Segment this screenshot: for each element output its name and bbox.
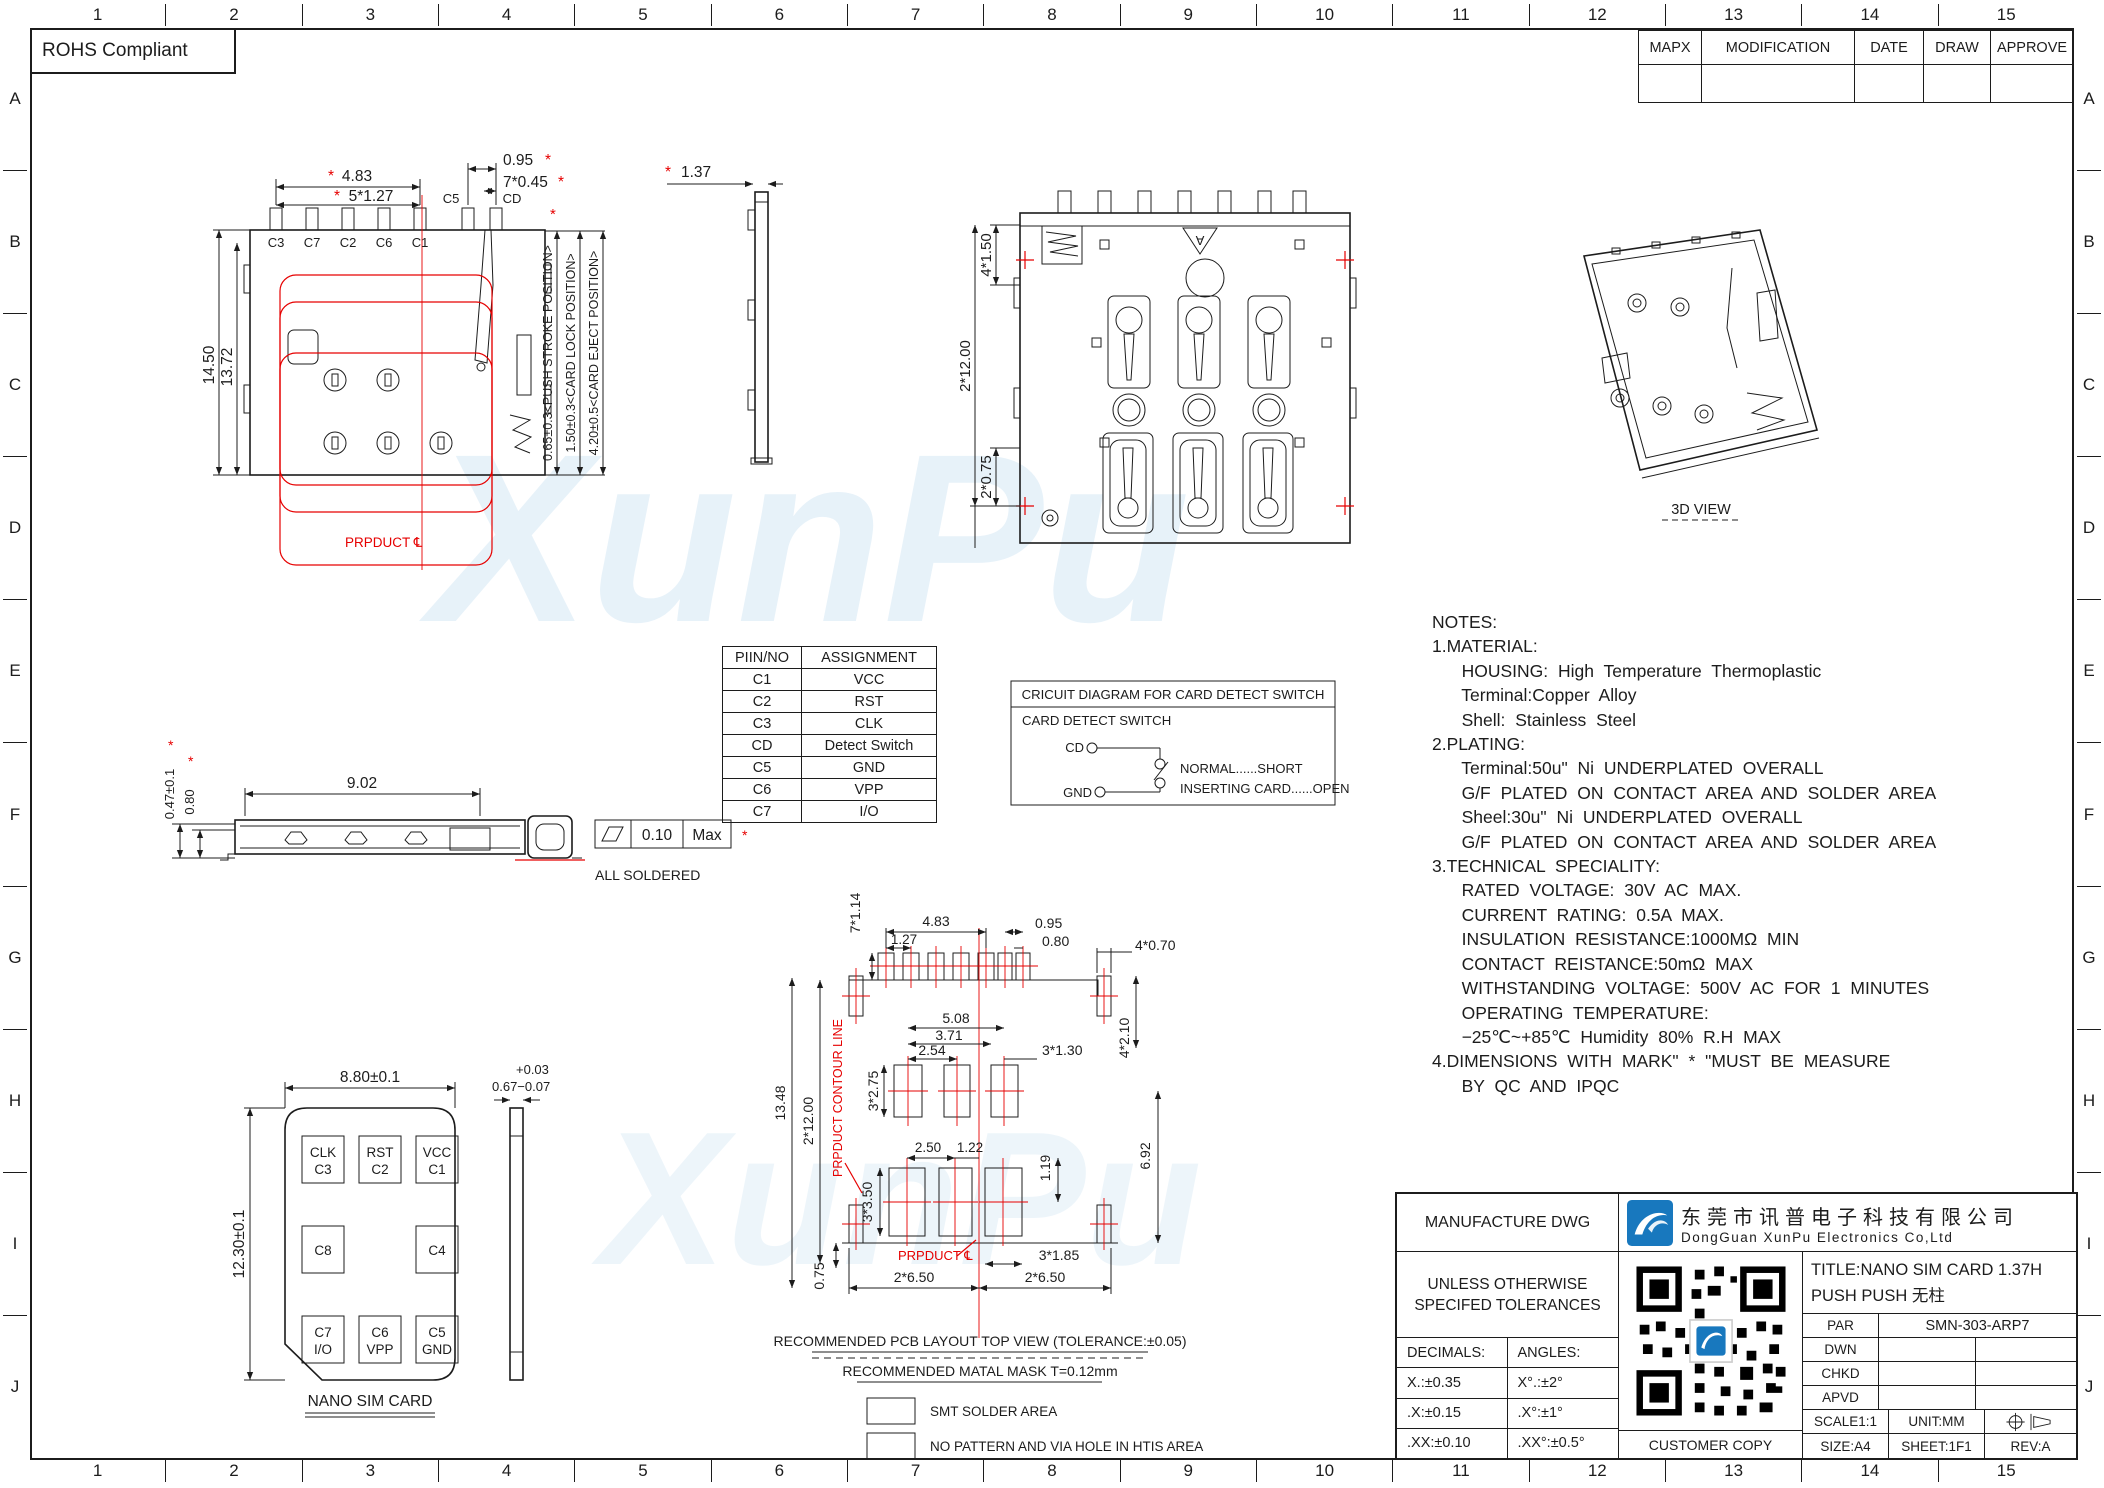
dim: 4*0.70 (1135, 937, 1176, 953)
sim-card-geometry (244, 1082, 540, 1417)
circuit-normal-note: NORMAL......SHORT (1180, 761, 1303, 776)
dim: 1.22 (957, 1140, 983, 1155)
dim: 13.48 (772, 1085, 788, 1120)
star-mark: * (168, 737, 174, 753)
ruler-row: H (2077, 1030, 2101, 1173)
view-3d: 3D VIEW (1532, 208, 1872, 533)
dwn-value (1879, 1338, 1976, 1361)
ruler-col: 10 (1257, 1460, 1393, 1482)
ruler-col: 7 (848, 4, 984, 26)
view-3d-geometry (1584, 230, 1819, 520)
size-label: SIZE:A4 (1803, 1434, 1889, 1458)
ruler-col: 15 (1939, 4, 2074, 26)
pad-label: C1 (428, 1162, 445, 1177)
dim: 3.71 (935, 1027, 962, 1043)
pin-label-c5: C5 (443, 191, 460, 206)
ruler-col: 12 (1530, 4, 1666, 26)
rev-cell-empty (1702, 65, 1855, 102)
dwn-label: DWN (1803, 1338, 1879, 1361)
ruler-col: 11 (1393, 1460, 1529, 1482)
ruler-col: 13 (1666, 1460, 1802, 1482)
pcb-layout-view: 4.83 1.27 0.95 0.80 4*0.70 7*1.14 5.08 3… (752, 868, 1207, 1466)
pad-label: RST (367, 1145, 394, 1160)
pad-label: C8 (314, 1243, 331, 1258)
scale-label: SCALE1:1 (1803, 1410, 1889, 1433)
flatness-max: Max (692, 827, 722, 844)
pin-table-header: ASSIGNMENT (802, 647, 937, 669)
pin-label: C3 (268, 235, 285, 250)
star-mark: * (558, 174, 564, 191)
sim-card-label: NANO SIM CARD (308, 1393, 433, 1410)
apvd-label: APVD (1803, 1386, 1879, 1409)
card-lock-position: 1.50±0.3<CARD LOCK POSITION> (564, 253, 578, 452)
dim: 2*6.50 (1025, 1269, 1066, 1285)
star-mark: * (188, 753, 194, 769)
ruler-row: A (3, 28, 27, 171)
sim-card-view: 8.80±0.1 12.30±0.1 +0.03 0.67−0.07 CLK C… (210, 1058, 565, 1428)
chkd-extra (1976, 1362, 2076, 1385)
star-mark: * (328, 168, 334, 185)
rev-header: DATE (1855, 31, 1924, 65)
pin-assignment: RST (802, 691, 937, 713)
pin-assignment: VPP (802, 779, 937, 801)
view-3d-label: 3D VIEW (1671, 502, 1731, 518)
pin-assignment: Detect Switch (802, 735, 937, 757)
rev-header: DRAW (1924, 31, 1991, 65)
note-line: RATED VOLTAGE: 30V AC MAX. (1432, 878, 2012, 902)
title-block: MANUFACTURE DWG 东莞市讯普电子科技有限公司 DongGuan X… (1395, 1192, 2078, 1460)
star-mark: * (545, 152, 551, 169)
table-row: C1VCC (723, 669, 937, 691)
pin-label-cd: CD (503, 191, 522, 206)
ruler-col: 9 (1121, 4, 1257, 26)
pad-label: C6 (371, 1325, 388, 1340)
ruler-col: 6 (712, 4, 848, 26)
pad-label: C3 (314, 1162, 331, 1177)
dim-h1: 0.47±0.1 (162, 769, 177, 820)
note-line: Terminal:50u" Ni UNDERPLATED OVERALL (1432, 756, 2012, 780)
ruler-col: 5 (575, 4, 711, 26)
ruler-col: 15 (1939, 1460, 2074, 1482)
decimals-header: DECIMALS: (1397, 1338, 1508, 1368)
table-row: C2RST (723, 691, 937, 713)
circuit-inserting-note: INSERTING CARD......OPEN (1180, 781, 1350, 796)
circuit-gnd-label: GND (1063, 785, 1092, 800)
note-line: 4.DIMENSIONS WITH MARK" * "MUST BE MEASU… (1432, 1049, 2012, 1073)
ruler-left: ABCDEFGHIJ (3, 28, 27, 1458)
drawing-sheet: XunPu XunPu 123456789101112131415 123456… (0, 0, 2104, 1488)
ruler-row: C (3, 314, 27, 457)
pad-label: VCC (423, 1145, 452, 1160)
ruler-col: 14 (1802, 1460, 1938, 1482)
ruler-row: J (2077, 1316, 2101, 1458)
note-line: HOUSING: High Temperature Thermoplastic (1432, 659, 2012, 683)
note-line: −25℃~+85℃ Humidity 80% R.H MAX (1432, 1025, 2012, 1049)
star-mark: * (665, 164, 671, 181)
ruler-col: 13 (1666, 4, 1802, 26)
dwn-extra (1976, 1338, 2076, 1361)
dim: 3*2.75 (865, 1071, 881, 1112)
dim-width: 4.83 (342, 168, 372, 185)
dim-height: 1.37 (681, 164, 711, 181)
note-line: CONTACT REISTANCE:50mΩ MAX (1432, 952, 2012, 976)
company-logo-icon (1627, 1200, 1673, 1246)
circuit-subtitle: CARD DETECT SWITCH (1022, 713, 1171, 728)
rev-label: REV:A (1985, 1434, 2076, 1458)
rev-header: APPROVE (1991, 31, 2073, 65)
tolerance-value: .X°:±1° (1508, 1399, 1619, 1429)
rev-cell-empty (1991, 65, 2073, 102)
dim-pitch: 5*1.27 (349, 188, 394, 205)
par-label: PAR (1803, 1314, 1879, 1337)
pin-table-header: PIIN/NO (723, 647, 802, 669)
ruler-col: 5 (575, 1460, 711, 1482)
product-contour-label: PRPDUCT CONTOUR LINE (831, 1019, 845, 1177)
circuit-title: CRICUIT DIAGRAM FOR CARD DETECT SWITCH (1022, 687, 1325, 702)
dim: 0.80 (1042, 933, 1069, 949)
pad-label: C4 (428, 1243, 446, 1258)
all-soldered-note: ALL SOLDERED (595, 867, 700, 883)
tolerance-value: .XX:±0.10 (1397, 1429, 1508, 1458)
note-line: Terminal:Copper Alloy (1432, 683, 2012, 707)
dim: 5.08 (942, 1010, 969, 1026)
ruler-row: J (3, 1316, 27, 1458)
pin-assignment: I/O (802, 801, 937, 823)
ruler-row: D (2077, 457, 2101, 600)
company-name-cn: 东莞市讯普电子科技有限公司 (1681, 1201, 2019, 1230)
part-number: SMN-303-ARP7 (1879, 1314, 2076, 1337)
pcb-caption: RECOMMENDED PCB LAYOUT TOP VIEW (TOLERAN… (774, 1333, 1187, 1349)
ruler-col: 1 (30, 4, 166, 26)
pad-label: C2 (371, 1162, 388, 1177)
ruler-row: G (3, 887, 27, 1030)
note-line: WITHSTANDING VOLTAGE: 500V AC FOR 1 MINU… (1432, 976, 2012, 1000)
ruler-col: 4 (439, 1460, 575, 1482)
pcb-caption: RECOMMENDED MATAL MASK T=0.12mm (842, 1363, 1117, 1379)
note-line: INSULATION RESISTANCE:1000MΩ MIN (1432, 927, 2012, 951)
star-mark: * (742, 827, 748, 843)
top-view-geometry (244, 208, 551, 475)
star-mark: * (334, 188, 340, 205)
top-view-product-contour (280, 195, 492, 570)
dim-height: 14.50 (201, 345, 218, 384)
note-line: G/F PLATED ON CONTACT AREA AND SOLDER AR… (1432, 781, 2012, 805)
star-mark: * (550, 206, 556, 223)
dim-cd-width: 0.95 (503, 152, 533, 169)
ruler-row: B (2077, 171, 2101, 314)
ruler-col: 4 (439, 4, 575, 26)
dim: 2*6.50 (894, 1269, 935, 1285)
ruler-col: 2 (166, 1460, 302, 1482)
ruler-row: I (3, 1173, 27, 1316)
legend-nopattern-swatch (867, 1433, 915, 1459)
notes-block: NOTES: 1.MATERIAL: HOUSING: High Tempera… (1432, 610, 2012, 1098)
bottom-view-corner-marks (1016, 251, 1354, 515)
rev-header: MODIFICATION (1702, 31, 1855, 65)
pin-label: C1 (412, 235, 429, 250)
pin-no: C2 (723, 691, 802, 713)
tolerance-value: X°.:±2° (1508, 1368, 1619, 1398)
note-line: Shell: Stainless Steel (1432, 708, 2012, 732)
push-stroke-position: 0.65±0.3<PUSH STROKE POSITION> (541, 245, 555, 461)
angles-header: ANGLES: (1508, 1338, 1619, 1368)
bottom-view: A 4*1.50 2*12.00 2*0.75 (950, 148, 1390, 578)
unit-label: UNIT:MM (1889, 1410, 1985, 1433)
rev-cell-empty (1924, 65, 1991, 102)
side-view-geometry (172, 788, 731, 860)
pcb-dimensions (792, 928, 1158, 1294)
apvd-extra (1976, 1386, 2076, 1409)
pin-no: C1 (723, 669, 802, 691)
dim: 1.19 (1038, 1155, 1053, 1181)
ruler-row: A (2077, 28, 2101, 171)
pad-label: CLK (310, 1145, 336, 1160)
legend (867, 1398, 915, 1459)
pin-label: C7 (304, 235, 321, 250)
manufacture-dwg-label: MANUFACTURE DWG (1397, 1194, 1619, 1251)
ruler-row: B (3, 171, 27, 314)
dim: 2.54 (918, 1042, 945, 1058)
circuit-cd-label: CD (1065, 740, 1084, 755)
ruler-row: D (3, 457, 27, 600)
pin-assignment: GND (802, 757, 937, 779)
legend-nopattern-label: NO PATTERN AND VIA HOLE IN HTIS AREA (930, 1439, 1203, 1454)
ruler-col: 8 (984, 4, 1120, 26)
legend-smt-label: SMT SOLDER AREA (930, 1404, 1057, 1419)
chkd-value (1879, 1362, 1976, 1385)
pin-label: C6 (376, 235, 393, 250)
ruler-col: 11 (1393, 4, 1529, 26)
dim-card-width: 8.80±0.1 (340, 1069, 400, 1086)
dim: 3*1.30 (1042, 1042, 1083, 1058)
dim: 4.83 (922, 913, 949, 929)
pin-assignment: CLK (802, 713, 937, 735)
bottom-view-geometry (1014, 191, 1356, 543)
pin-assignment: VCC (802, 669, 937, 691)
dim: 0.95 (1035, 915, 1062, 931)
company-name-en: DongGuan XunPu Electronics Co,Ltd (1681, 1230, 2019, 1245)
dim-thickness-plus: +0.03 (516, 1062, 549, 1077)
ruler-row: E (3, 600, 27, 743)
pad-label: I/O (314, 1342, 332, 1357)
pad-label: C7 (314, 1325, 331, 1340)
tolerance-value: .XX°:±0.5° (1508, 1429, 1619, 1458)
ruler-row: F (3, 743, 27, 886)
note-line: CURRENT RATING: 0.5A MAX. (1432, 903, 2012, 927)
dim-height: 2*12.00 (957, 340, 974, 392)
rev-cell-empty (1639, 65, 1702, 102)
pad-label: GND (422, 1342, 452, 1357)
chkd-label: CHKD (1803, 1362, 1879, 1385)
dim-card-height: 12.30±0.1 (231, 1210, 248, 1279)
ruler-row: I (2077, 1173, 2101, 1316)
pcb-centerlines (842, 928, 1118, 1338)
dim-edge: 2*0.75 (978, 455, 995, 498)
ruler-row: H (3, 1030, 27, 1173)
dim-h2: 0.80 (182, 789, 197, 814)
dim: 6.92 (1137, 1142, 1153, 1169)
apvd-value (1879, 1386, 1976, 1409)
ruler-top: 123456789101112131415 (30, 4, 2074, 26)
top-view: PRPDUCT ℄ * 4.83 * 5*1.27 0.95 * 7*0.45 … (185, 135, 615, 585)
datum-label: A (1195, 233, 1204, 248)
dim: 7*1.14 (847, 893, 863, 934)
circuit-diagram: CRICUIT DIAGRAM FOR CARD DETECT SWITCH C… (1010, 680, 1336, 806)
legend-smt-swatch (867, 1398, 915, 1424)
ruler-col: 14 (1802, 4, 1938, 26)
note-line: 1.MATERIAL: (1432, 634, 2012, 658)
ruler-col: 1 (30, 1460, 166, 1482)
ruler-row: C (2077, 314, 2101, 457)
dim-height2: 13.72 (219, 348, 236, 387)
ruler-row: E (2077, 600, 2101, 743)
side-profile-geometry (667, 184, 783, 464)
tolerance-value: .X:±0.15 (1397, 1399, 1508, 1429)
dim: 0.75 (811, 1262, 827, 1289)
note-line: G/F PLATED ON CONTACT AREA AND SOLDER AR… (1432, 830, 2012, 854)
dim: 3*1.85 (1039, 1247, 1080, 1263)
rev-header: MAPX (1639, 31, 1702, 65)
sheet-label: SHEET:1F1 (1889, 1434, 1985, 1458)
dim: 1.27 (891, 932, 917, 947)
ruler-col: 3 (303, 1460, 439, 1482)
drawing-title-line2: PUSH PUSH 无柱 (1811, 1283, 2076, 1309)
note-line: Sheel:30u" Ni UNDERPLATED OVERALL (1432, 805, 2012, 829)
dim-thickness: 0.67−0.07 (492, 1079, 550, 1094)
dim: 2.50 (915, 1140, 941, 1155)
side-profile-view: * 1.37 (655, 140, 855, 475)
note-line: 2.PLATING: (1432, 732, 2012, 756)
ruler-right: ABCDEFGHIJ (2077, 28, 2101, 1458)
note-line: BY QC AND IPQC (1432, 1074, 2012, 1098)
customer-copy-label: CUSTOMER COPY (1619, 1430, 1802, 1458)
notes-title: NOTES: (1432, 610, 2012, 634)
ruler-col: 12 (1530, 1460, 1666, 1482)
pad-label: C5 (428, 1325, 445, 1340)
dim-len: 9.02 (347, 775, 377, 792)
dim: 3*3.50 (859, 1182, 875, 1223)
ruler-col: 3 (303, 4, 439, 26)
ruler-col: 10 (1257, 4, 1393, 26)
dim-pitch: 4*1.50 (978, 233, 995, 276)
product-centerline-label: PRPDUCT ℄ (898, 1248, 973, 1263)
dim: 2*12.00 (800, 1097, 816, 1145)
note-line: 3.TECHNICAL SPECIALITY: (1432, 854, 2012, 878)
dim-pin-width: 7*0.45 (503, 174, 548, 191)
pin-label: C2 (340, 235, 357, 250)
side-view: * 0.47±0.1 * 0.80 9.02 (150, 732, 770, 890)
tolerance-heading: SPECIFED TOLERANCES (1414, 1295, 1600, 1316)
ruler-row: F (2077, 743, 2101, 886)
dim: 4*2.10 (1116, 1018, 1132, 1059)
rev-cell-empty (1855, 65, 1924, 102)
ruler-col: 2 (166, 4, 302, 26)
note-line: OPERATING TEMPERATURE: (1432, 1001, 2012, 1025)
product-centerline-label: PRPDUCT ℄ (345, 535, 423, 550)
drawing-title-line1: TITLE:NANO SIM CARD 1.37H (1811, 1257, 2076, 1283)
pcb-pads (842, 953, 1118, 1243)
card-eject-position: 4.20±0.5<CARD EJECT POSITION> (587, 251, 601, 456)
ruler-row: G (2077, 887, 2101, 1030)
projection-symbol (1985, 1410, 2076, 1433)
tolerance-value: X.:±0.35 (1397, 1368, 1508, 1398)
pad-label: VPP (366, 1342, 393, 1357)
rohs-label: ROHS Compliant (30, 28, 236, 74)
qr-code (1630, 1260, 1792, 1422)
revision-table: MAPX MODIFICATION DATE DRAW APPROVE (1638, 30, 2074, 103)
flatness-value: 0.10 (642, 827, 673, 844)
tolerance-heading: UNLESS OTHERWISE (1428, 1274, 1588, 1295)
